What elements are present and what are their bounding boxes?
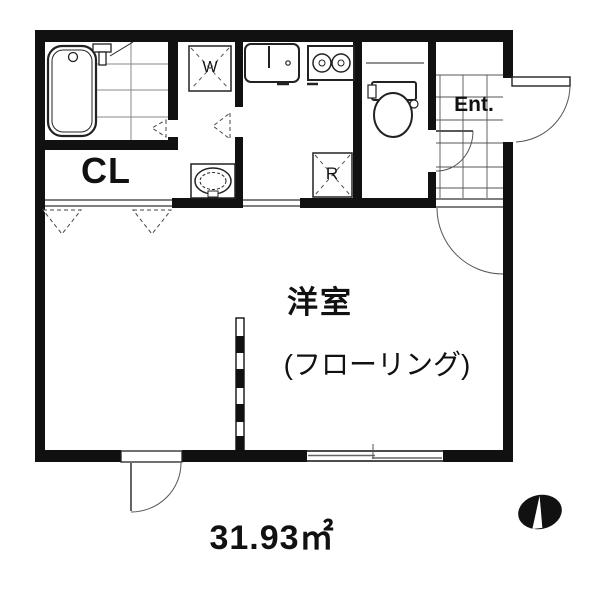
kitchen-sink bbox=[245, 44, 299, 82]
washroom-folding-door-icon bbox=[213, 113, 230, 139]
bathtub bbox=[48, 46, 96, 136]
bottom-door-closed-leaf bbox=[121, 451, 182, 462]
north-indicator-icon bbox=[515, 491, 565, 533]
wall-bottom-right bbox=[443, 450, 513, 462]
bottom-door-arc bbox=[131, 463, 181, 512]
wall-toilet-entrance-upper bbox=[428, 42, 436, 130]
bath-corner-line bbox=[110, 42, 133, 56]
wall-bottom-mid bbox=[182, 450, 307, 462]
floor-area-label: 31.93㎡ bbox=[192, 521, 352, 555]
main-room-floor-type: (フローリング) bbox=[252, 351, 502, 379]
bathroom-folding-door-icon bbox=[152, 120, 166, 137]
wall-right-lower bbox=[503, 142, 513, 462]
wall-washroom-kitchen-upper bbox=[235, 42, 243, 107]
closet-label: CL bbox=[72, 153, 140, 189]
toilet-flush-handle bbox=[368, 85, 376, 98]
bath-faucet bbox=[93, 44, 111, 52]
wall-bath-washroom-lower bbox=[168, 137, 178, 150]
wall-under-washroom bbox=[172, 198, 243, 208]
front-door-arc bbox=[516, 86, 570, 142]
partition-dashed-wall bbox=[236, 318, 244, 450]
wall-under-kitchen-toilet bbox=[300, 198, 436, 208]
bottom-door bbox=[121, 451, 182, 512]
wall-right-upper bbox=[503, 30, 513, 78]
closet bbox=[43, 210, 171, 234]
wall-left bbox=[35, 30, 45, 462]
closet-folding-door-right-icon bbox=[133, 210, 171, 234]
wall-bottom-left bbox=[35, 450, 121, 462]
toilet-door-arc bbox=[436, 131, 473, 171]
washbasin-faucet bbox=[208, 191, 218, 197]
main-room-name: 洋室 bbox=[250, 287, 390, 318]
fridge-label: R bbox=[318, 165, 346, 182]
front-door-leaf bbox=[512, 77, 570, 86]
bath-faucet-stem bbox=[99, 52, 106, 65]
bottom-window bbox=[307, 444, 443, 462]
main-room bbox=[121, 318, 443, 512]
washroom-door-opening bbox=[235, 107, 243, 137]
wall-washroom-kitchen-lower bbox=[235, 137, 243, 198]
toilet-bowl bbox=[374, 93, 412, 137]
wall-toilet-entrance-lower bbox=[428, 172, 436, 198]
wall-top bbox=[35, 30, 513, 42]
entrance-room-door-arc bbox=[437, 208, 503, 274]
toilet-room bbox=[366, 63, 473, 172]
toilet-door-opening bbox=[428, 130, 436, 172]
floor-plan-canvas: CL W R Ent. 洋室 (フローリング) 31.93㎡ bbox=[0, 0, 600, 596]
bathroom bbox=[48, 42, 168, 140]
washer-label: W bbox=[196, 60, 224, 76]
entrance-label: Ent. bbox=[442, 94, 506, 115]
wall-bath-washroom-upper bbox=[168, 42, 178, 120]
toilet-knob bbox=[410, 100, 418, 108]
closet-folding-door-left-icon bbox=[43, 210, 81, 234]
wall-bath-closet-divider bbox=[45, 140, 178, 150]
